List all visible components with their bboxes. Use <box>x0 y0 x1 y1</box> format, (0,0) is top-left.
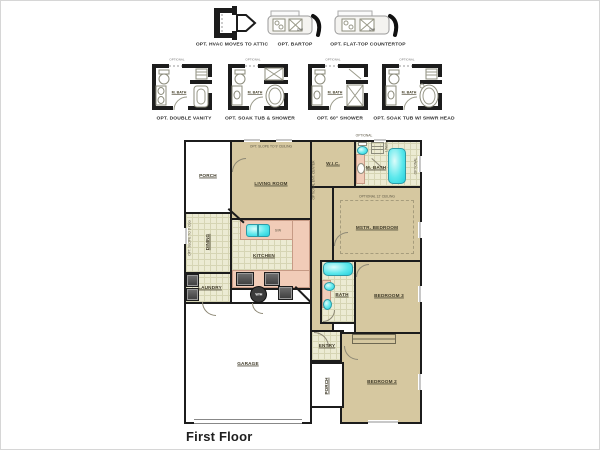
annotation-slope-ceiling: OPT. SLOPE TO 9' CEILING <box>250 145 292 148</box>
first-floor-plan: W/H PORCH <box>184 136 424 426</box>
annotation-slope-clg: OPT. SLOPE TO 9' CLG <box>188 220 191 256</box>
label-master-bath: M. BATH <box>366 166 386 171</box>
label-laundry: LAUNDRY <box>198 286 222 291</box>
linen-closet-icon <box>426 69 437 79</box>
dw-label: D/W <box>297 29 303 32</box>
window <box>418 156 422 172</box>
annotation-ent-center: OPTIONAL ENT. CENTER <box>312 160 315 199</box>
linen-closet-icon <box>196 69 207 79</box>
annotation-optional-top: OPTIONAL <box>356 134 373 137</box>
bartop-icon <box>266 9 324 39</box>
toilet-icon <box>159 70 169 84</box>
mbath-tub-icon <box>388 148 406 184</box>
opt-soak-tub-shwr-head-label: OPT. SOAK TUB W/ SHWR HEAD <box>373 116 454 121</box>
label-bedroom2: BEDROOM 2 <box>367 380 397 385</box>
vanity-icon <box>312 86 322 105</box>
stove-icon <box>236 272 254 286</box>
mbath-sink-icon <box>357 163 365 174</box>
hvac-attic-icon <box>206 5 260 41</box>
opt-soak-tub-shower-card: OPTIONAL M. BATH <box>227 57 293 113</box>
opt-double-vanity-label: OPT. DOUBLE VANITY <box>156 116 211 121</box>
label-living-room: LIVING ROOM <box>254 182 287 187</box>
double-vanity-icon <box>156 86 166 105</box>
vanity-icon <box>232 86 242 105</box>
window <box>276 138 292 142</box>
label-bedroom3: BEDROOM 3 <box>374 294 404 299</box>
sink-icon <box>342 19 355 31</box>
vanity-icon <box>386 86 396 105</box>
room-living <box>230 140 312 220</box>
bath-toilet-icon <box>324 282 335 291</box>
mbath-label: M. BATH <box>402 91 417 95</box>
opt-hvac-card <box>206 5 260 41</box>
label-porch-top: PORCH <box>199 174 217 179</box>
mbath-label: M. BATH <box>172 91 187 95</box>
page-title: First Floor <box>186 429 252 444</box>
opt-60-shower-card: OPTIONAL M. BATH <box>307 57 373 113</box>
optional-tag: OPTIONAL <box>245 59 260 62</box>
soak-tub-icon <box>266 85 284 107</box>
garage-door <box>194 419 302 424</box>
mbath-option-diagram <box>307 63 373 113</box>
water-heater-label: W/H <box>255 293 262 297</box>
window <box>418 286 422 302</box>
linen-closet-icon <box>371 142 384 154</box>
shower-icon <box>347 85 363 106</box>
mbath-label: M. BATH <box>248 91 263 95</box>
kitchen-sink-icon <box>246 224 270 237</box>
toilet-icon <box>235 70 245 84</box>
washer-icon <box>186 274 199 287</box>
flat-top-countertop-icon <box>333 9 401 39</box>
opt-bartop-card: D/W <box>266 9 324 39</box>
opt-bartop-label: OPT. BARTOP <box>278 42 313 47</box>
toilet-icon <box>389 70 399 84</box>
opt-soak-tub-shower-label: OPT. SOAK TUB & SHOWER <box>225 116 295 121</box>
annotation-linen: LINEN <box>385 142 388 152</box>
annotation-opt-ceiling: OPTIONAL 12' CEILING <box>359 195 395 198</box>
freezer-icon <box>278 286 293 300</box>
opt-soak-tub-shwr-head-card: OPTIONAL M. BATH <box>381 57 447 113</box>
annotation-sink-window: S/W <box>275 229 281 232</box>
bath-sink-icon <box>323 299 332 310</box>
label-garage: GARAGE <box>237 362 258 367</box>
optional-tag: OPTIONAL <box>325 59 340 62</box>
bath-tub-icon <box>323 262 353 276</box>
mbath-option-diagram <box>227 63 293 113</box>
opt-hvac-label: OPT. HVAC MOVES TO ATTIC <box>196 42 268 47</box>
annotation-optional-side: OPTIONAL <box>414 158 417 175</box>
label-wic: W.I.C. <box>326 162 340 167</box>
label-entry: ENTRY <box>319 344 335 349</box>
bedroom2-closet <box>352 334 396 344</box>
tub-icon <box>194 86 208 107</box>
label-bath: BATH <box>335 293 348 298</box>
floor-plan-page: OPT. HVAC MOVES TO ATTIC D/W OPT. BARTOP… <box>0 0 600 450</box>
shower-head-icon <box>420 84 424 88</box>
window <box>418 222 422 238</box>
toilet-icon <box>315 70 325 84</box>
opt-60-shower-label: OPT. 60" SHOWER <box>317 116 363 121</box>
soak-tub-icon <box>420 84 438 107</box>
label-dining: DINING <box>206 234 211 250</box>
optional-tag: OPTIONAL <box>169 59 184 62</box>
opt-flattop-label: OPT. FLAT-TOP COUNTERTOP <box>330 42 405 47</box>
window <box>244 138 260 142</box>
label-kitchen: KITCHEN <box>253 254 275 259</box>
opt-flattop-card: D/W <box>333 9 401 39</box>
mbath-option-diagram <box>151 63 217 113</box>
opt-double-vanity-card: OPTIONAL M. BATH <box>151 57 217 113</box>
dw-label: D/W <box>369 29 375 32</box>
dryer-icon <box>186 288 199 301</box>
label-porch-bottom: PORCH <box>325 378 330 395</box>
mbath-option-diagram <box>381 63 447 113</box>
shower-icon <box>265 68 283 80</box>
fridge-icon <box>264 272 280 286</box>
label-master-bedroom: MSTR. BEDROOM <box>356 226 398 231</box>
window <box>418 374 422 390</box>
window <box>368 420 398 424</box>
window <box>374 138 386 142</box>
optional-tag: OPTIONAL <box>399 59 414 62</box>
sink-icon <box>273 19 285 31</box>
toilet-icon <box>357 146 368 155</box>
mbath-label: M. BATH <box>328 91 343 95</box>
water-heater-icon: W/H <box>250 286 267 303</box>
